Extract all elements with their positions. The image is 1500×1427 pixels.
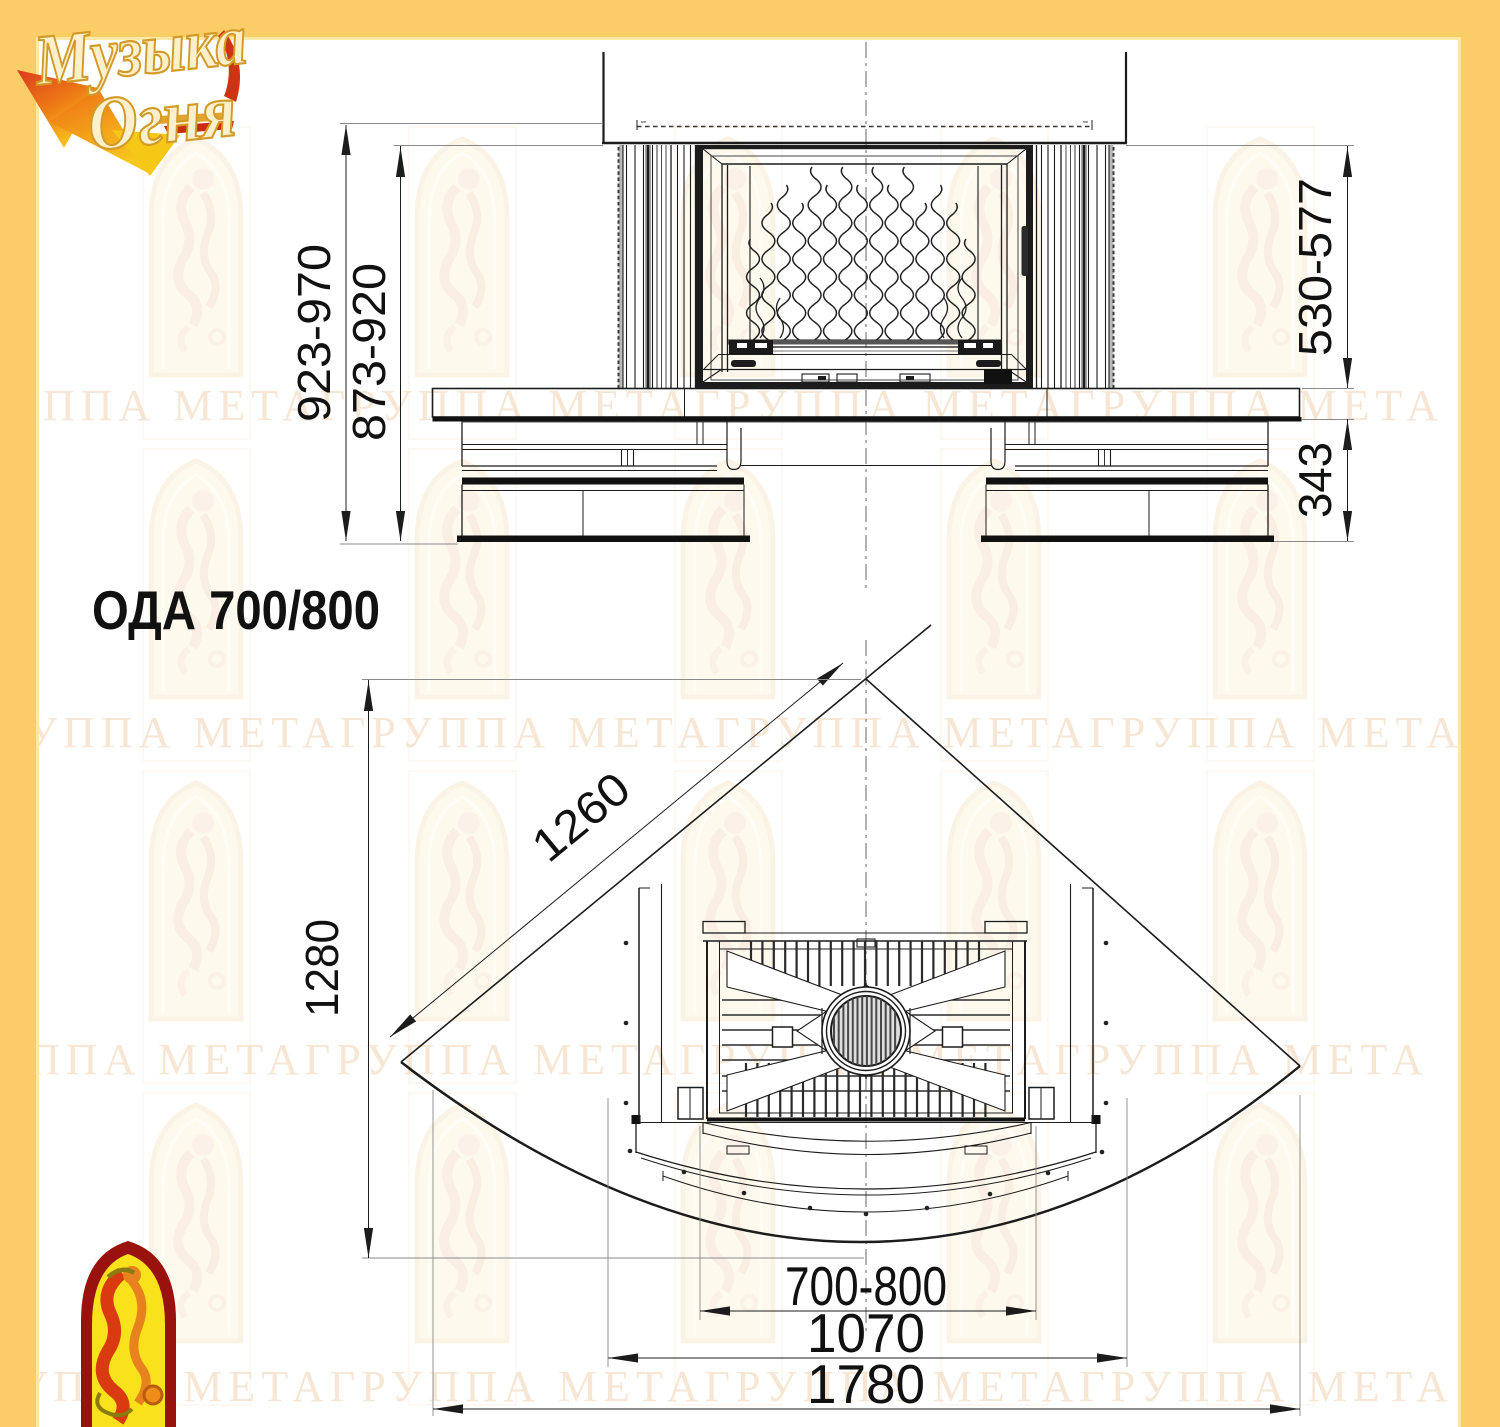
svg-text:1780: 1780 xyxy=(807,1353,925,1415)
svg-text:1280: 1280 xyxy=(296,919,348,1017)
svg-text:1260: 1260 xyxy=(522,762,640,872)
